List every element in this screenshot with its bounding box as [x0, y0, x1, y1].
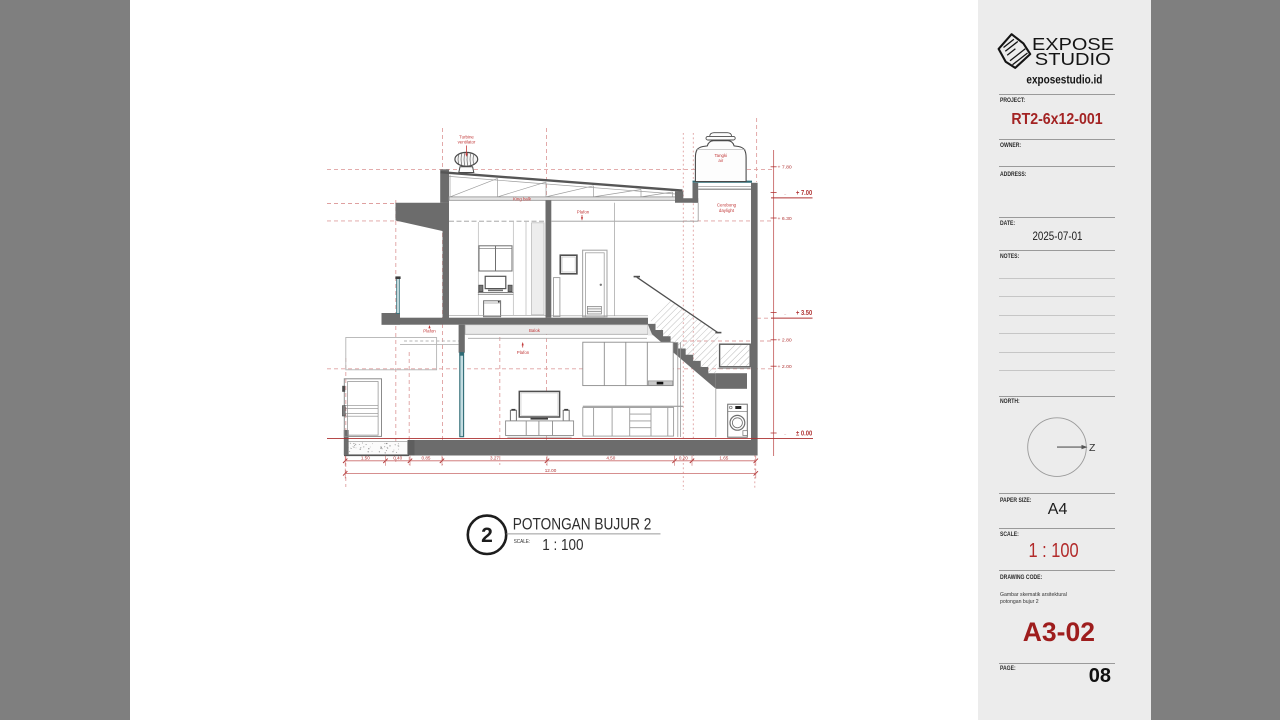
svg-text:SCALE:: SCALE: [514, 539, 531, 545]
svg-text:+ 3.50: + 3.50 [796, 310, 812, 317]
svg-text:+ 7.00: + 7.00 [796, 190, 812, 197]
svg-text:~: ~ [784, 432, 787, 437]
svg-text:1.65: 1.65 [719, 456, 728, 461]
svg-text:ventilator: ventilator [458, 140, 476, 145]
svg-text:0.20: 0.20 [679, 456, 688, 461]
svg-text:+ 2.00: + 2.00 [778, 364, 793, 369]
svg-text:+ 7.80: + 7.80 [778, 165, 793, 170]
svg-text:Plafon: Plafon [577, 210, 590, 215]
svg-text:3.27: 3.27 [490, 456, 499, 461]
svg-text:0.85: 0.85 [422, 456, 431, 461]
svg-text:daylight: daylight [719, 208, 735, 213]
svg-text:STUDIO: STUDIO [1035, 49, 1111, 69]
svg-text:12.00: 12.00 [545, 468, 557, 473]
svg-text:0.40: 0.40 [393, 456, 402, 461]
svg-text:exposestudio.id: exposestudio.id [1026, 72, 1102, 86]
svg-text:+ 6.30: + 6.30 [778, 216, 793, 221]
svg-text:4.50: 4.50 [606, 456, 615, 461]
svg-text:King balk: King balk [513, 197, 532, 202]
svg-text:Z: Z [1089, 442, 1096, 454]
svg-text:Plafon: Plafon [423, 329, 436, 334]
svg-text:POTONGAN BUJUR 2: POTONGAN BUJUR 2 [513, 515, 652, 534]
svg-text:Plafon: Plafon [517, 350, 530, 355]
svg-text:1.50: 1.50 [361, 456, 370, 461]
svg-text:2: 2 [481, 524, 493, 547]
svg-text:1 : 100: 1 : 100 [542, 537, 583, 554]
svg-text:+ 2.80: + 2.80 [778, 338, 793, 343]
svg-text:air: air [718, 158, 723, 163]
svg-text:± 0.00: ± 0.00 [796, 431, 812, 438]
svg-text:Balok: Balok [529, 328, 541, 333]
svg-text:~: ~ [784, 191, 787, 196]
svg-text:~: ~ [784, 312, 787, 317]
